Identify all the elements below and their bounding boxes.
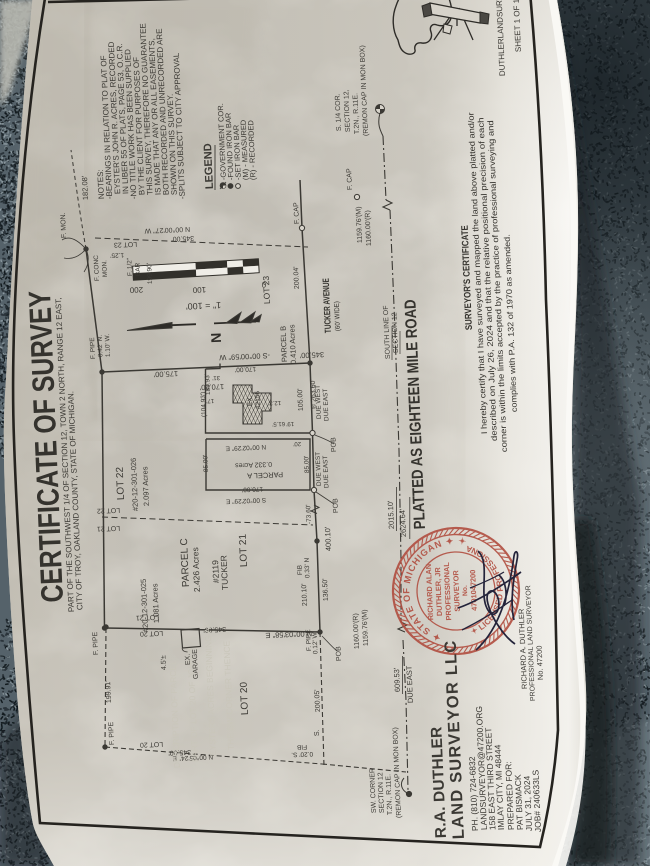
- svg-text:S.: S.: [314, 729, 321, 736]
- svg-text:2.426 Acres: 2.426 Acres: [190, 547, 202, 592]
- svg-text:MON.: MON.: [101, 260, 109, 277]
- svg-text:1.25': 1.25': [110, 251, 124, 259]
- svg-text:F. CAP: F. CAP: [293, 202, 301, 224]
- svg-text:1.10' W.: 1.10' W.: [104, 333, 112, 357]
- svg-text:DUE EAST: DUE EAST: [322, 455, 330, 488]
- svg-text:0.20' S.: 0.20' S.: [291, 750, 313, 758]
- svg-text:4701047200: 4701047200: [468, 570, 479, 611]
- svg-text:No. 47200: No. 47200: [535, 645, 545, 680]
- svg-text:F. PIPE: F. PIPE: [108, 721, 116, 745]
- svg-text:#2155: #2155: [254, 390, 262, 409]
- svg-text:LOT 21: LOT 21: [136, 613, 160, 621]
- svg-text:N: N: [208, 332, 224, 343]
- svg-text:LOT 21: LOT 21: [97, 524, 121, 532]
- svg-text:FIB: FIB: [297, 565, 304, 575]
- svg-text:61.5': 61.5': [272, 420, 285, 427]
- svg-text:POB: POB: [335, 646, 343, 661]
- svg-text:F. MON.: F. MON.: [60, 212, 68, 238]
- svg-text:GARAGE: GARAGE: [192, 649, 200, 680]
- svg-text:85.00': 85.00': [303, 455, 311, 473]
- svg-text:-73.60': -73.60': [305, 504, 313, 524]
- svg-text:200.05': 200.05': [314, 689, 322, 712]
- svg-text:SURVEYOR: SURVEYOR: [451, 569, 462, 611]
- svg-text:136.50': 136.50': [322, 578, 330, 601]
- svg-text:170.00': 170.00': [235, 365, 256, 373]
- svg-text:0.410 Acres: 0.410 Acres: [287, 324, 298, 364]
- svg-text:2.097 Acres: 2.097 Acres: [140, 466, 151, 506]
- svg-text:200: 200: [129, 285, 143, 295]
- svg-text:F. CAP: F. CAP: [346, 168, 354, 190]
- svg-text:DUE EAST: DUE EAST: [404, 665, 415, 703]
- svg-text:1160.00'(R): 1160.00'(R): [353, 613, 361, 649]
- svg-text:LOT 20: LOT 20: [239, 681, 251, 715]
- svg-text:POB: POB: [330, 437, 338, 452]
- svg-text:F. PIPE: F. PIPE: [92, 631, 100, 655]
- svg-text:609.53': 609.53': [392, 667, 402, 692]
- svg-text:TUCKER: TUCKER: [219, 555, 230, 590]
- svg-text:12.3': 12.3': [268, 399, 281, 406]
- svg-text:105.00': 105.00': [297, 388, 305, 411]
- svg-text:PARCEL A: PARCEL A: [247, 470, 283, 480]
- svg-text:EX.: EX.: [247, 395, 254, 406]
- svg-text:189.93': 189.93': [204, 374, 212, 395]
- svg-text:0.12' W.: 0.12' W.: [312, 630, 320, 654]
- svg-text:LEGEND: LEGEND: [202, 143, 216, 189]
- svg-text:400.10': 400.10': [323, 526, 333, 551]
- svg-text:LOT 20: LOT 20: [140, 629, 164, 637]
- svg-text:EX.: EX.: [185, 654, 192, 666]
- svg-text:LOT 22: LOT 22: [115, 466, 127, 500]
- svg-text:2624.64': 2624.64': [398, 508, 408, 537]
- svg-text:1160.00'(R): 1160.00'(R): [365, 210, 373, 246]
- svg-text:199.90': 199.90': [146, 263, 154, 284]
- svg-text:LOT 22: LOT 22: [97, 506, 121, 514]
- svg-text:4.5'±: 4.5'±: [160, 655, 168, 670]
- svg-text:210.10': 210.10': [301, 583, 309, 606]
- svg-text:100: 100: [192, 285, 206, 295]
- svg-text:BAR: BAR: [134, 262, 142, 276]
- svg-text:LOT 20: LOT 20: [140, 740, 164, 748]
- svg-text:31': 31': [212, 374, 220, 380]
- svg-text:345.00': 345.00': [299, 350, 324, 360]
- svg-text:19': 19': [286, 420, 294, 426]
- svg-text:F. CONC: F. CONC: [93, 255, 101, 282]
- svg-text:200.04': 200.04': [293, 266, 301, 289]
- svg-text:85.00': 85.00': [202, 454, 210, 472]
- svg-text:175.00': 175.00': [153, 369, 178, 379]
- svg-text:2015.10': 2015.10': [386, 500, 396, 529]
- svg-text:170.00': 170.00': [242, 485, 263, 493]
- svg-text:20': 20': [293, 440, 301, 446]
- svg-text:LOT 23: LOT 23: [261, 275, 272, 304]
- svg-text:345.00': 345.00': [171, 234, 194, 242]
- svg-text:199.91': 199.91': [105, 680, 113, 703]
- svg-text:DUE EAST: DUE EAST: [322, 388, 330, 421]
- svg-text:1" = 100': 1" = 100': [185, 300, 221, 311]
- svg-text:LOT 23: LOT 23: [114, 240, 138, 248]
- svg-text:182.08': 182.08': [80, 175, 90, 200]
- svg-text:(60' WIDE): (60' WIDE): [334, 301, 342, 331]
- svg-text:LOT 21: LOT 21: [238, 533, 250, 567]
- svg-text:FIB: FIB: [297, 743, 307, 750]
- svg-text:0.33' N: 0.33' N: [304, 557, 312, 578]
- svg-text:F. 1/2": F. 1/2": [126, 257, 134, 276]
- svg-text:POB: POB: [332, 498, 340, 513]
